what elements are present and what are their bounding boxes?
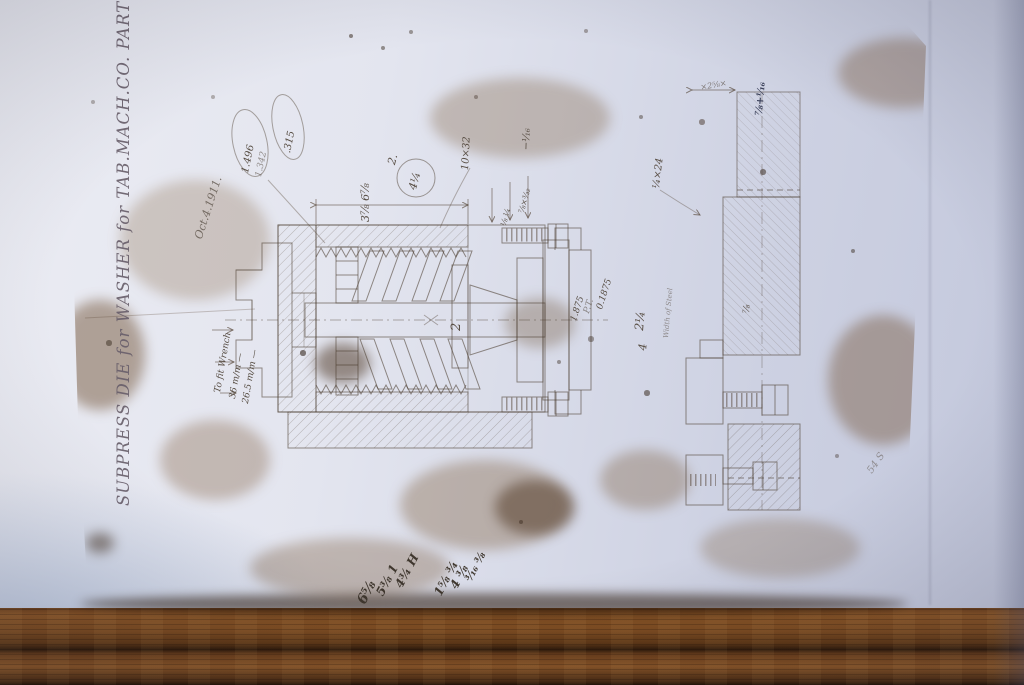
stain bbox=[430, 78, 610, 158]
between-dim-b: 4 bbox=[637, 343, 649, 351]
wooden-shelf bbox=[0, 608, 1024, 685]
stain bbox=[505, 298, 575, 348]
flange-dim-note: ⅞ bbox=[743, 304, 753, 313]
stain bbox=[160, 420, 270, 500]
between-dim-a: 2¼ bbox=[633, 311, 647, 331]
stain bbox=[315, 343, 370, 383]
handwritten-title: SUBPRESS DIE for WASHER for TAB.MACH.CO.… bbox=[116, 0, 133, 506]
blueprint-paper bbox=[0, 0, 1024, 685]
part-number-label: 2 bbox=[450, 323, 463, 331]
wall-seam-line bbox=[929, 0, 931, 605]
sixteenth-dim: −¹⁄₁₆ bbox=[522, 128, 533, 150]
stain bbox=[700, 518, 860, 578]
stain bbox=[600, 450, 690, 510]
stain bbox=[120, 180, 270, 300]
stain bbox=[495, 480, 575, 535]
stacked-fractions: 3⅞ 6⅞ bbox=[360, 183, 371, 222]
photo-scene: SUBPRESS DIE for WASHER for TAB.MACH.CO.… bbox=[0, 0, 1024, 685]
thread-spec-note: 10×32 bbox=[461, 136, 473, 170]
stain bbox=[250, 538, 450, 598]
stain bbox=[86, 533, 114, 553]
